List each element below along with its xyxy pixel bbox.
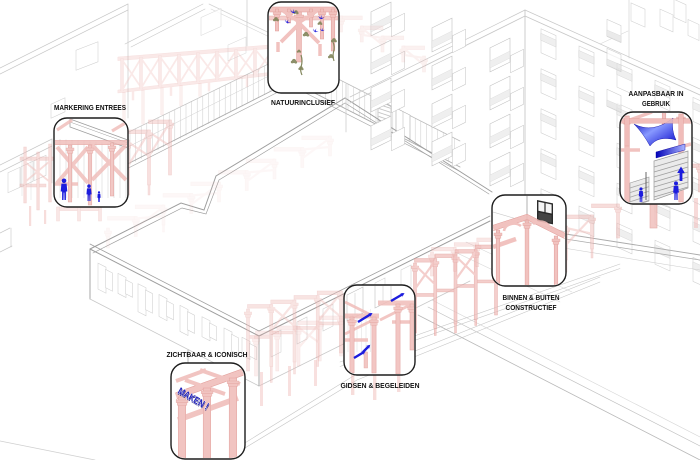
svg-text:NATUURINCLUSIEF: NATUURINCLUSIEF [271,98,335,107]
svg-text:BINNEN & BUITEN: BINNEN & BUITEN [503,293,560,302]
svg-text:AANPASBAAR IN: AANPASBAAR IN [629,89,684,98]
svg-text:CONSTRUCTIEF: CONSTRUCTIEF [506,303,557,312]
svg-text:GEBRUIK: GEBRUIK [642,99,670,108]
svg-text:MARKERING ENTREES: MARKERING ENTREES [54,103,126,112]
svg-text:GIDSEN & BEGELEIDEN: GIDSEN & BEGELEIDEN [341,381,420,390]
svg-text:ZICHTBAAR & ICONISCH: ZICHTBAAR & ICONISCH [167,350,248,359]
